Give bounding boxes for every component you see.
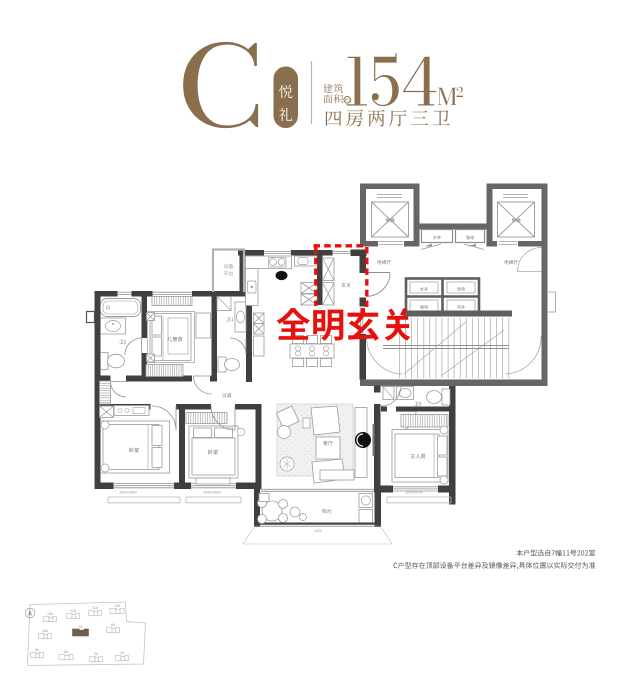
svg-text:10#: 10# [114, 604, 120, 608]
svg-text:13#: 13# [47, 612, 53, 616]
svg-text:7#: 7# [79, 625, 83, 629]
svg-text:12#: 12# [70, 609, 76, 613]
svg-text:11#: 11# [92, 606, 98, 610]
svg-text:16#: 16# [42, 629, 48, 633]
svg-text:8#: 8# [111, 623, 115, 627]
svg-text:3000x3600: 3000x3600 [203, 491, 221, 495]
svg-text:3600x4200: 3600x4200 [405, 491, 423, 495]
svg-text:6#: 6# [64, 650, 68, 654]
svg-text:2400: 2400 [314, 529, 322, 533]
svg-text:1#: 1# [120, 651, 124, 655]
svg-text:5#: 5# [35, 648, 39, 652]
svg-text:3300x3600: 3300x3600 [119, 491, 137, 495]
svg-text:2#: 2# [94, 652, 98, 656]
